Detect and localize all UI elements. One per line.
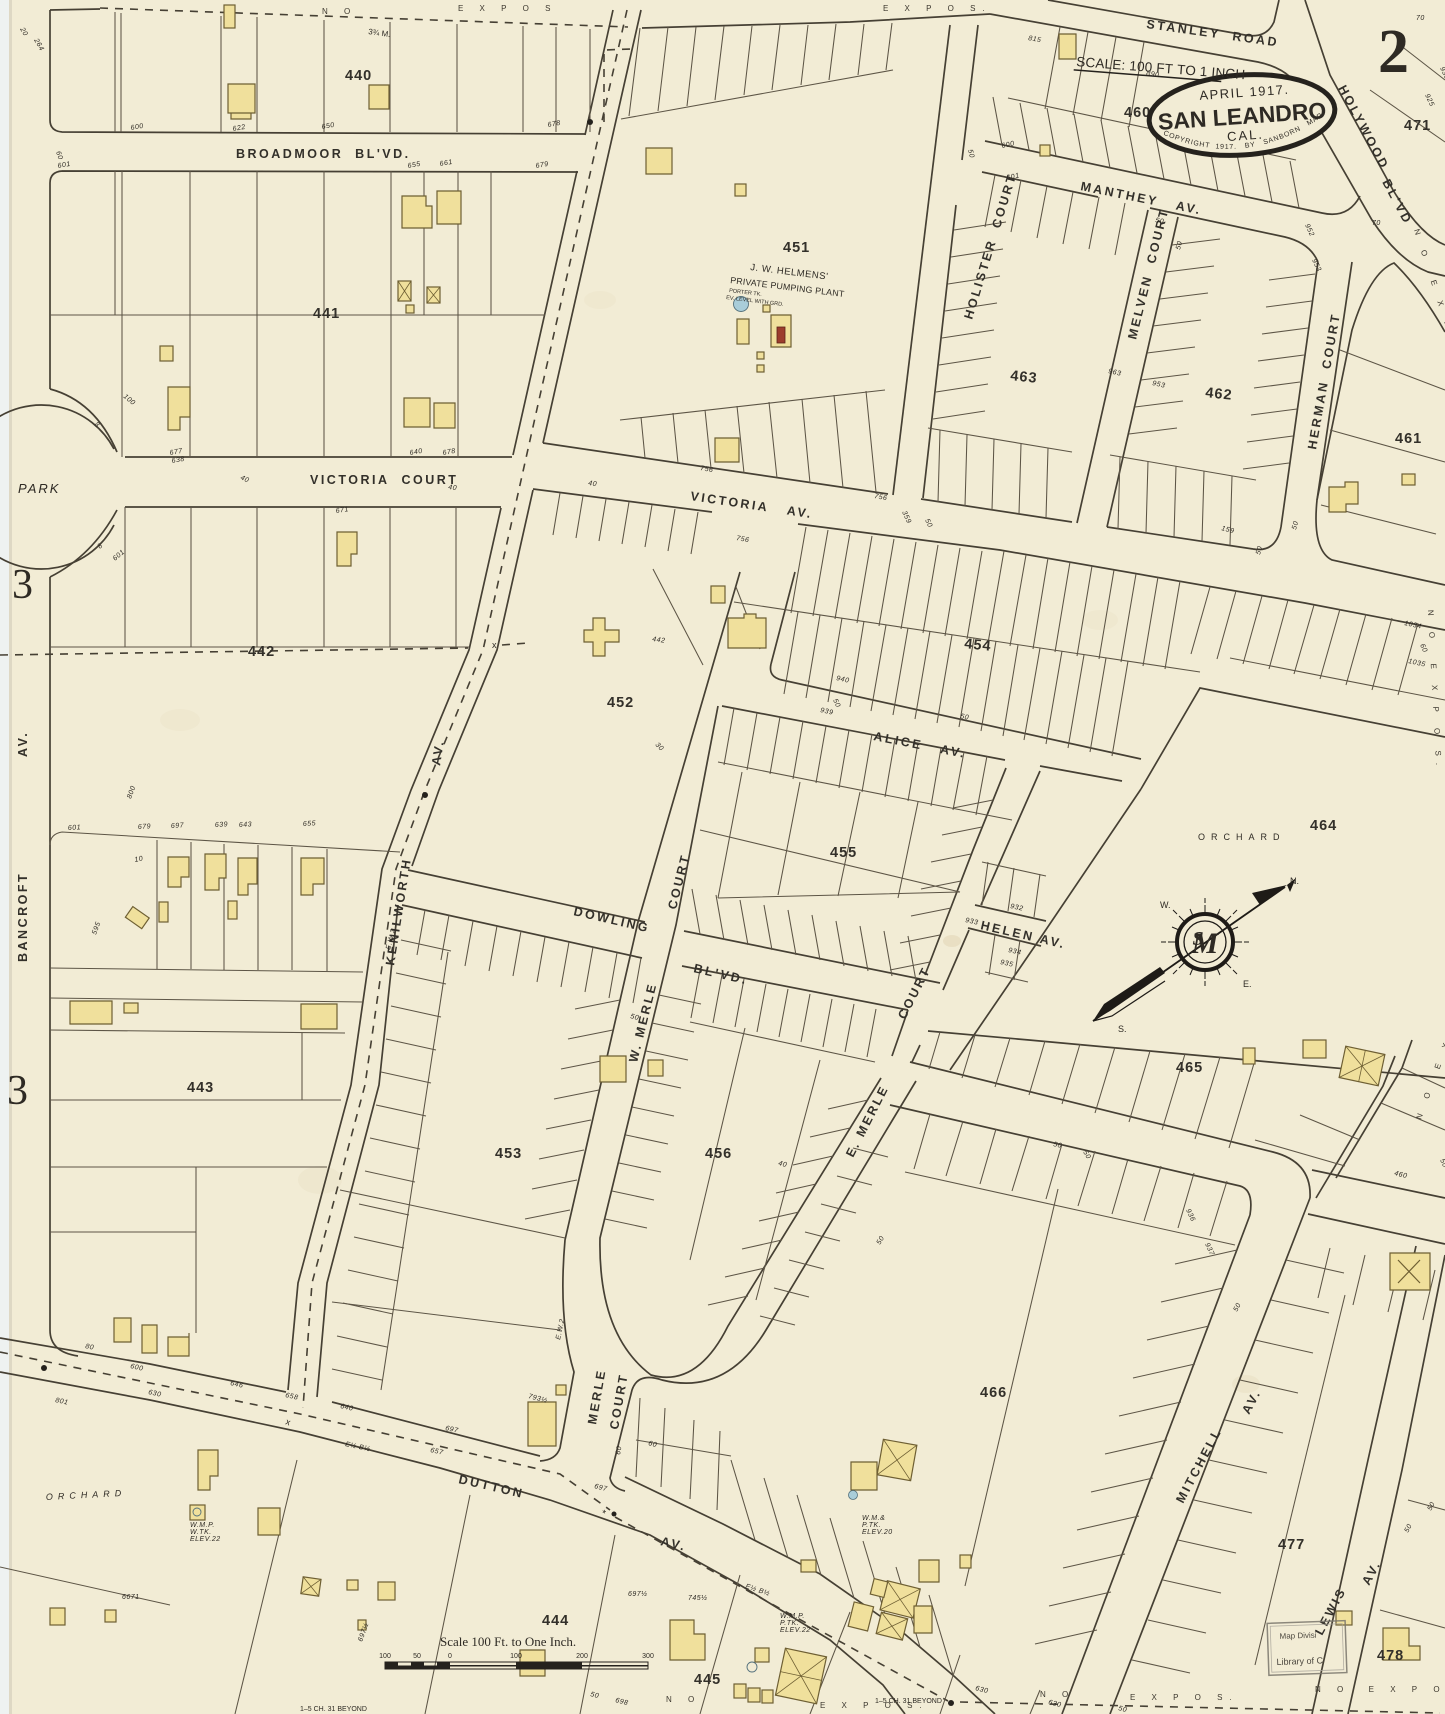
svg-text:50: 50	[413, 1653, 421, 1660]
svg-text:444: 444	[542, 1613, 569, 1629]
svg-text:40: 40	[588, 480, 598, 488]
svg-text:P.TK.: P.TK.	[862, 1522, 881, 1529]
svg-text:443: 443	[187, 1080, 214, 1096]
svg-text:442: 442	[248, 644, 275, 660]
svg-text:451: 451	[783, 240, 810, 256]
svg-text:200: 200	[576, 1653, 588, 1660]
svg-text:VICTORIA COURT: VICTORIA COURT	[310, 473, 458, 487]
svg-text:Scale 100 Ft. to One Inch.: Scale 100 Ft. to One Inch.	[440, 1634, 576, 1649]
svg-text:697: 697	[171, 822, 185, 830]
svg-text:40: 40	[448, 484, 458, 492]
svg-text:466: 466	[980, 1385, 1007, 1401]
svg-text:440: 440	[345, 68, 372, 84]
svg-text:463: 463	[1010, 368, 1039, 387]
svg-text:N O: N O	[1040, 1690, 1075, 1699]
svg-text:453: 453	[495, 1146, 522, 1162]
svg-text:655: 655	[303, 820, 317, 828]
svg-text:S.: S.	[1118, 1024, 1127, 1034]
svg-text:N O: N O	[322, 7, 357, 16]
svg-text:3: 3	[12, 562, 33, 608]
svg-text:E X P O S.: E X P O S.	[1130, 1693, 1239, 1702]
svg-text:W.TK.: W.TK.	[190, 1529, 212, 1536]
svg-text:462: 462	[1205, 385, 1234, 404]
svg-text:W.M.P.: W.M.P.	[780, 1613, 805, 1620]
svg-text:471: 471	[1404, 118, 1431, 134]
svg-text:W.M.P.: W.M.P.	[190, 1522, 215, 1529]
svg-text:679: 679	[138, 823, 152, 831]
svg-text:441: 441	[313, 306, 340, 322]
svg-text:BROADMOOR BL'VD.: BROADMOOR BL'VD.	[236, 147, 411, 161]
svg-text:Library of C: Library of C	[1276, 1655, 1323, 1667]
svg-text:456: 456	[705, 1146, 732, 1162]
svg-text:BANCROFT: BANCROFT	[16, 872, 30, 962]
svg-text:3: 3	[7, 1068, 28, 1114]
svg-text:W.M.&: W.M.&	[862, 1515, 885, 1522]
svg-text:ELEV.22: ELEV.22	[780, 1627, 811, 1634]
svg-text:1–5 CH. 31 BEYOND: 1–5 CH. 31 BEYOND	[300, 1706, 367, 1713]
svg-text:AV.: AV.	[16, 731, 30, 757]
svg-text:643: 643	[239, 821, 253, 829]
svg-text:70: 70	[1416, 15, 1425, 22]
svg-text:445: 445	[694, 1672, 721, 1688]
svg-text:70: 70	[1372, 220, 1381, 227]
svg-text:478: 478	[1377, 1648, 1404, 1664]
svg-text:0: 0	[448, 1653, 452, 1660]
svg-text:477: 477	[1278, 1537, 1305, 1553]
svg-text:Map Divisi: Map Divisi	[1279, 1631, 1316, 1641]
svg-text:ORCHARD: ORCHARD	[1198, 832, 1286, 842]
svg-text:601: 601	[68, 824, 82, 832]
svg-text:100: 100	[510, 1653, 522, 1660]
svg-text:454: 454	[964, 636, 993, 655]
svg-text:E X P O S: E X P O S	[458, 4, 557, 13]
svg-text:N.: N.	[1290, 876, 1299, 886]
svg-text:S: S	[1192, 928, 1203, 950]
svg-text:W.: W.	[1160, 900, 1171, 910]
svg-text:E.: E.	[1243, 979, 1252, 989]
svg-text:PARK: PARK	[18, 481, 60, 496]
svg-text:6671: 6671	[122, 1594, 140, 1601]
svg-text:ELEV.22: ELEV.22	[190, 1536, 221, 1543]
svg-text:452: 452	[607, 695, 634, 711]
svg-text:697½: 697½	[628, 1590, 648, 1598]
svg-text:N O: N O	[666, 1695, 701, 1704]
svg-text:100: 100	[379, 1653, 391, 1660]
svg-text:465: 465	[1176, 1060, 1203, 1076]
svg-text:300: 300	[642, 1653, 654, 1660]
svg-text:461: 461	[1395, 431, 1422, 447]
svg-text:ELEV.20: ELEV.20	[862, 1529, 893, 1536]
svg-text:745½: 745½	[688, 1594, 708, 1602]
svg-text:E X P O S.: E X P O S.	[883, 4, 992, 13]
svg-text:P.TK.: P.TK.	[780, 1620, 799, 1627]
svg-text:464: 464	[1310, 818, 1337, 834]
svg-text:2: 2	[1378, 18, 1409, 86]
svg-text:639: 639	[215, 821, 229, 829]
svg-text:N O E X P O S.: N O E X P O S.	[1315, 1685, 1445, 1694]
svg-text:455: 455	[830, 845, 857, 861]
svg-text:1–5 CH. 31 BEYOND: 1–5 CH. 31 BEYOND	[875, 1698, 942, 1705]
svg-text:x: x	[492, 640, 497, 650]
